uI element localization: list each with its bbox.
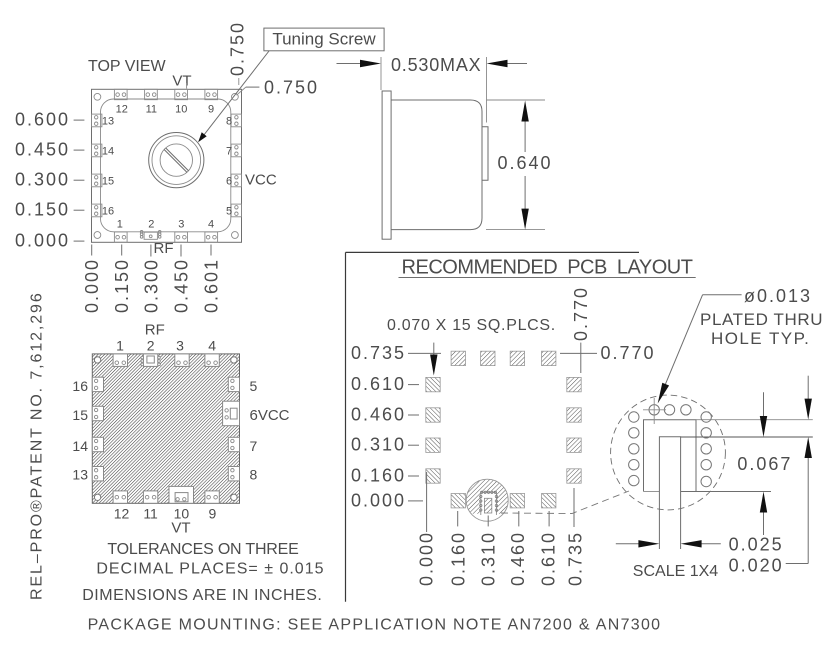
svg-text:7: 7 xyxy=(250,438,258,454)
svg-text:VT: VT xyxy=(172,73,191,90)
svg-text:0.460: 0.460 xyxy=(508,531,528,586)
svg-text:0.067: 0.067 xyxy=(737,454,792,474)
svg-text:12: 12 xyxy=(116,104,128,116)
svg-text:2: 2 xyxy=(147,338,155,354)
svg-text:0.150: 0.150 xyxy=(15,200,70,220)
svg-text:HOLE TYP.: HOLE TYP. xyxy=(711,329,810,348)
svg-text:0.460: 0.460 xyxy=(351,405,406,425)
svg-text:0.070 X 15 SQ.PLCS.: 0.070 X 15 SQ.PLCS. xyxy=(387,317,556,334)
svg-text:0.770: 0.770 xyxy=(601,343,656,363)
svg-text:0.300: 0.300 xyxy=(142,258,162,313)
svg-text:0.450: 0.450 xyxy=(15,140,70,160)
svg-text:0.640: 0.640 xyxy=(497,153,552,173)
svg-text:16: 16 xyxy=(72,378,88,394)
svg-text:0.150: 0.150 xyxy=(112,258,132,313)
svg-text:DECIMAL PLACES= ± 0.015: DECIMAL PLACES= ± 0.015 xyxy=(96,561,324,578)
svg-text:9: 9 xyxy=(208,104,214,116)
svg-text:8: 8 xyxy=(250,467,258,483)
svg-text:RECOMMENDED PCB LAYOUT: RECOMMENDED PCB LAYOUT xyxy=(402,257,693,279)
svg-text:SCALE 1X4: SCALE 1X4 xyxy=(633,563,718,580)
svg-text:PLATED THRU: PLATED THRU xyxy=(700,310,823,329)
svg-text:3: 3 xyxy=(178,219,184,231)
svg-text:0.020: 0.020 xyxy=(729,556,784,576)
svg-text:9: 9 xyxy=(209,506,217,522)
svg-text:13: 13 xyxy=(72,467,88,483)
svg-text:0.160: 0.160 xyxy=(449,531,469,586)
svg-text:6: 6 xyxy=(226,175,232,187)
svg-text:0.310: 0.310 xyxy=(479,531,499,586)
svg-text:11: 11 xyxy=(146,104,157,116)
svg-text:15: 15 xyxy=(102,175,114,187)
svg-text:0.300: 0.300 xyxy=(15,170,70,190)
svg-text:6VCC: 6VCC xyxy=(250,407,290,424)
svg-text:Tuning Screw: Tuning Screw xyxy=(272,30,376,49)
svg-text:13: 13 xyxy=(102,115,114,127)
svg-text:REL–PRO®PATENT NO. 7,612,296: REL–PRO®PATENT NO. 7,612,296 xyxy=(29,291,46,600)
svg-text:0.000: 0.000 xyxy=(351,490,406,510)
svg-text:8: 8 xyxy=(226,115,232,127)
svg-text:0.750: 0.750 xyxy=(228,21,248,76)
svg-text:15: 15 xyxy=(72,407,88,423)
svg-text:PACKAGE MOUNTING: SEE APPLICAT: PACKAGE MOUNTING: SEE APPLICATION NOTE A… xyxy=(88,617,662,634)
svg-text:0.735: 0.735 xyxy=(351,343,406,363)
svg-text:0.310: 0.310 xyxy=(351,435,406,455)
svg-text:2: 2 xyxy=(148,219,154,231)
svg-text:ø0.013: ø0.013 xyxy=(744,286,812,306)
svg-text:TOP VIEW: TOP VIEW xyxy=(88,58,167,75)
svg-text:4: 4 xyxy=(208,219,214,231)
svg-text:4: 4 xyxy=(208,338,216,354)
svg-text:1: 1 xyxy=(117,219,123,231)
svg-text:10: 10 xyxy=(175,104,187,116)
svg-text:0.610: 0.610 xyxy=(539,531,559,586)
svg-text:0.750: 0.750 xyxy=(264,78,319,98)
svg-text:VT: VT xyxy=(171,520,190,537)
svg-text:VCC: VCC xyxy=(245,172,277,189)
svg-text:0.770: 0.770 xyxy=(571,286,591,341)
svg-text:0.000: 0.000 xyxy=(82,258,102,313)
svg-text:0.025: 0.025 xyxy=(729,535,784,555)
svg-text:0.000: 0.000 xyxy=(417,531,437,586)
svg-text:16: 16 xyxy=(102,205,114,217)
svg-text:0.450: 0.450 xyxy=(172,258,192,313)
svg-text:0.600: 0.600 xyxy=(15,110,70,130)
svg-text:5: 5 xyxy=(250,378,258,394)
svg-text:7: 7 xyxy=(226,145,232,157)
svg-text:DIMENSIONS ARE IN INCHES.: DIMENSIONS ARE IN INCHES. xyxy=(82,587,322,604)
svg-text:5: 5 xyxy=(226,205,232,217)
svg-text:0.000: 0.000 xyxy=(15,231,70,251)
svg-text:0.735: 0.735 xyxy=(566,531,586,586)
svg-text:12: 12 xyxy=(114,506,130,522)
svg-text:TOLERANCES ON THREE: TOLERANCES ON THREE xyxy=(107,541,298,558)
svg-text:14: 14 xyxy=(102,145,114,157)
svg-text:0.610: 0.610 xyxy=(351,374,406,394)
svg-text:3: 3 xyxy=(176,338,184,354)
svg-text:RF: RF xyxy=(154,240,174,257)
svg-text:RF: RF xyxy=(145,322,165,339)
svg-text:11: 11 xyxy=(143,506,158,522)
svg-text:0.530MAX: 0.530MAX xyxy=(391,55,481,75)
svg-text:1: 1 xyxy=(116,338,124,354)
svg-text:0.601: 0.601 xyxy=(202,258,222,313)
svg-text:14: 14 xyxy=(72,438,88,454)
svg-text:0.160: 0.160 xyxy=(351,466,406,486)
